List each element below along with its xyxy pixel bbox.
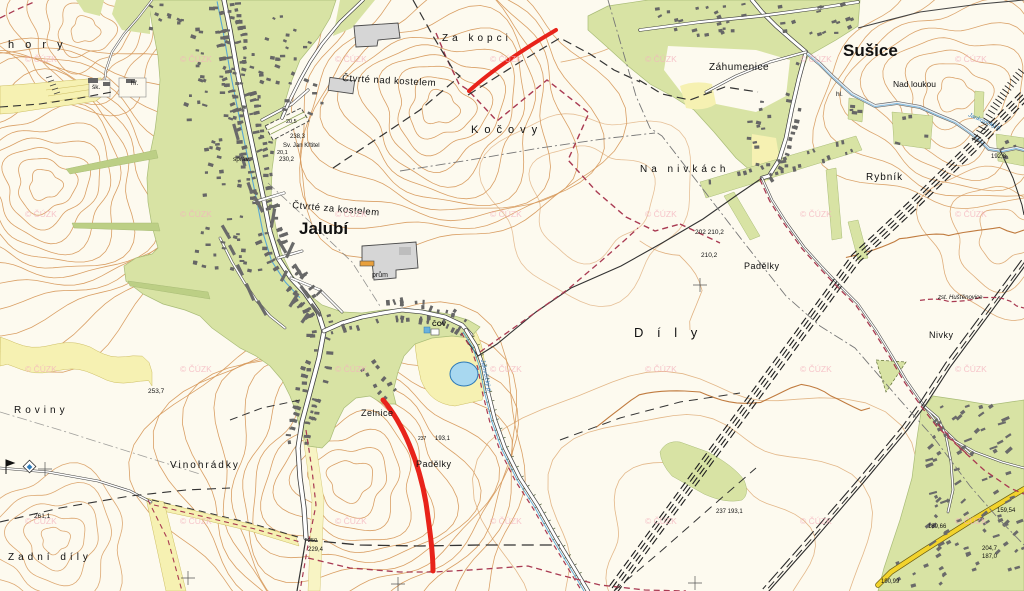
svg-text:© ČÚZK: © ČÚZK [25,364,57,374]
svg-text:zst. Hušťěnovice: zst. Hušťěnovice [937,295,983,301]
svg-text:© ČÚZK: © ČÚZK [800,54,832,64]
svg-text:© ČÚZK: © ČÚZK [335,54,367,64]
svg-text:20,1: 20,1 [277,150,288,156]
svg-text:Zadní díly: Zadní díly [8,552,92,563]
svg-text:ČOV: ČOV [432,319,447,328]
svg-text:© ČÚZK: © ČÚZK [25,516,57,526]
svg-text:© ČÚZK: © ČÚZK [645,209,677,219]
svg-text:Padělky: Padělky [416,459,452,469]
svg-text:229,4: 229,4 [308,547,324,553]
svg-text:Sv. Jan Křtitel: Sv. Jan Křtitel [283,143,320,149]
svg-text:204,7: 204,7 [982,546,998,552]
svg-text:© ČÚZK: © ČÚZK [645,364,677,374]
svg-text:© ČÚZK: © ČÚZK [955,516,987,526]
svg-text:190,99: 190,99 [881,579,900,585]
svg-text:Kočovy: Kočovy [471,124,543,136]
svg-text:189,66: 189,66 [928,524,947,530]
svg-text:© ČÚZK: © ČÚZK [180,516,212,526]
svg-text:193,1: 193,1 [435,436,451,442]
svg-text:Padělky: Padělky [744,261,780,271]
svg-text:© ČÚZK: © ČÚZK [490,516,522,526]
svg-text:správ.: správ. [233,156,250,163]
svg-text:© ČÚZK: © ČÚZK [490,54,522,64]
svg-text:Zelnice: Zelnice [361,408,394,418]
svg-text:Záhumenice: Záhumenice [709,62,769,73]
svg-text:Sušice: Sušice [843,41,898,60]
svg-text:20,5: 20,5 [286,119,297,125]
svg-text:hř.: hř. [131,80,139,87]
svg-text:230,2: 230,2 [279,157,295,163]
svg-text:D í l y: D í l y [634,325,702,340]
svg-text:hl.: hl. [836,91,843,98]
svg-text:Roviny: Roviny [14,405,69,416]
svg-text:237: 237 [418,436,427,442]
svg-text:šk.: šk. [92,84,101,91]
svg-text:© ČÚZK: © ČÚZK [335,516,367,526]
svg-text:© ČÚZK: © ČÚZK [25,54,57,64]
svg-text:237 193,1: 237 193,1 [716,509,743,515]
svg-text:© ČÚZK: © ČÚZK [490,364,522,374]
svg-text:© ČÚZK: © ČÚZK [335,364,367,374]
svg-text:192,8: 192,8 [991,154,1007,160]
svg-text:h o r y: h o r y [8,39,67,51]
svg-text:210,2: 210,2 [701,252,718,259]
svg-text:© ČÚZK: © ČÚZK [25,209,57,219]
svg-text:Rybník: Rybník [866,172,903,183]
svg-text:© ČÚZK: © ČÚZK [645,54,677,64]
svg-text:© ČÚZK: © ČÚZK [490,209,522,219]
svg-text:© ČÚZK: © ČÚZK [955,209,987,219]
svg-text:238,3: 238,3 [290,134,306,140]
svg-text:© ČÚZK: © ČÚZK [645,516,677,526]
svg-text:© ČÚZK: © ČÚZK [955,364,987,374]
svg-text:Nad loukou: Nad loukou [893,79,936,89]
svg-text:Jalubí: Jalubí [299,219,349,238]
svg-text:250: 250 [308,538,317,544]
svg-text:253,7: 253,7 [148,388,165,395]
svg-text:159,54: 159,54 [997,508,1016,514]
svg-text:© ČÚZK: © ČÚZK [335,209,367,219]
svg-text:© ČÚZK: © ČÚZK [180,209,212,219]
svg-text:© ČÚZK: © ČÚZK [800,364,832,374]
svg-text:Za kopci: Za kopci [442,33,512,44]
svg-text:187,0: 187,0 [982,554,998,560]
svg-text:Vinohrádky: Vinohrádky [170,460,240,471]
svg-text:© ČÚZK: © ČÚZK [800,516,832,526]
svg-text:prům: prům [372,271,388,279]
svg-text:Nivky: Nivky [929,330,954,340]
svg-text:© ČÚZK: © ČÚZK [180,364,212,374]
svg-text:© ČÚZK: © ČÚZK [800,209,832,219]
svg-text:Na nivkách: Na nivkách [640,164,729,175]
svg-text:© ČÚZK: © ČÚZK [180,54,212,64]
svg-text:© ČÚZK: © ČÚZK [955,54,987,64]
svg-text:202 210,2: 202 210,2 [695,229,724,236]
